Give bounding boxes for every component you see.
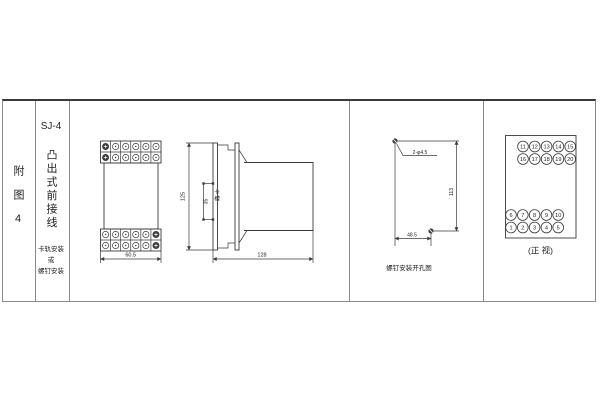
terminal-numbers: 1112131415161718192067891012345 [506, 141, 576, 233]
terminal-screw-icon [102, 242, 108, 248]
svg-text:9: 9 [545, 213, 548, 219]
top-step [218, 145, 236, 150]
terminal-19: 19 [553, 154, 564, 165]
side-view-drawing: 125 35 128 [181, 143, 314, 263]
terminal-1: 1 [506, 222, 517, 233]
svg-text:8: 8 [533, 213, 536, 219]
terminal-screw-icon [123, 154, 129, 160]
terminal-screw-icon [143, 231, 149, 237]
svg-text:15: 15 [567, 145, 573, 151]
bottom-step [218, 243, 236, 248]
terminal-screw-icon [143, 143, 149, 149]
terminal-screw-icon [133, 154, 139, 160]
relay-body-outline [104, 163, 158, 229]
terminal-screw-icon [133, 143, 139, 149]
svg-text:1: 1 [509, 226, 512, 232]
front-plate [213, 143, 218, 250]
terminal-17: 17 [529, 154, 540, 165]
hole-vertical-dimension: 113 [449, 188, 455, 196]
svg-text:3: 3 [533, 226, 536, 232]
terminal-9: 9 [541, 210, 552, 221]
terminal-screw-icon [102, 231, 108, 237]
terminal-15: 15 [565, 141, 576, 152]
mount-screw-icon [153, 242, 159, 248]
terminal-screw-icon [153, 154, 159, 160]
svg-text:12: 12 [532, 145, 538, 151]
technical-drawings: 60.5 125 [0, 0, 600, 400]
svg-text:18: 18 [543, 157, 549, 163]
terminal-face-outline [506, 136, 577, 239]
terminal-16: 16 [518, 154, 529, 165]
terminal-screw-icon [143, 154, 149, 160]
terminal-13: 13 [541, 141, 552, 152]
terminal-screw-icon [113, 242, 119, 248]
drill-template-drawing: 2-φ4.5 113 48.5 螺钉安装开孔图 [386, 138, 459, 272]
terminal-screw-icon [113, 143, 119, 149]
mounting-hole-icon [428, 228, 433, 233]
case-body [244, 163, 313, 231]
bezel-plate [235, 143, 239, 250]
svg-text:7: 7 [521, 213, 524, 219]
terminal-2: 2 [517, 222, 528, 233]
svg-text:5: 5 [557, 226, 560, 232]
svg-text:19: 19 [555, 157, 561, 163]
terminal-7: 7 [517, 210, 528, 221]
svg-text:17: 17 [532, 157, 538, 163]
svg-text:13: 13 [543, 145, 549, 151]
terminal-screw-icon [133, 242, 139, 248]
terminal-screw-icon [123, 143, 129, 149]
svg-text:4: 4 [545, 226, 548, 232]
slot-dimension: 35 [204, 199, 210, 205]
terminal-screw-icon [133, 231, 139, 237]
drill-template-caption: 螺钉安装开孔图 [386, 263, 432, 272]
terminal-5: 5 [553, 222, 564, 233]
hole-horizontal-dimension: 48.5 [407, 233, 417, 239]
terminal-20: 20 [565, 154, 576, 165]
terminal-8: 8 [529, 210, 540, 221]
terminal-face-caption: (正 视) [528, 246, 553, 256]
svg-text:14: 14 [555, 145, 561, 151]
terminal-3: 3 [529, 222, 540, 233]
terminal-4: 4 [541, 222, 552, 233]
terminal-18: 18 [541, 154, 552, 165]
mount-screw-icon [153, 231, 159, 237]
side-depth-dimension: 128 [257, 253, 266, 259]
terminal-screw-icon [153, 143, 159, 149]
mounting-hole-icon [392, 138, 397, 143]
svg-text:10: 10 [555, 213, 561, 219]
mount-screw-icon [102, 154, 108, 160]
terminal-screw-icon [113, 154, 119, 160]
terminal-6: 6 [506, 210, 517, 221]
terminal-screw-icon [123, 231, 129, 237]
front-width-dimension: 60.5 [125, 253, 136, 259]
terminal-11: 11 [518, 141, 529, 152]
terminal-14: 14 [553, 141, 564, 152]
terminal-screw-icon [113, 231, 119, 237]
front-view-drawing: 60.5 [101, 141, 162, 263]
terminal-screw-icon [123, 242, 129, 248]
svg-text:20: 20 [567, 157, 573, 163]
svg-text:6: 6 [509, 213, 512, 219]
terminal-10: 10 [553, 210, 564, 221]
hole-size-label: 2-φ4.5 [413, 150, 428, 156]
terminal-12: 12 [529, 141, 540, 152]
side-height-dimension: 125 [181, 192, 187, 201]
terminal-screw-icon [143, 242, 149, 248]
figure-page: 附图4 SJ-4 凸出式前接线 卡轨安装 或 螺钉安装 卡槽 [0, 0, 600, 400]
terminal-face-drawing: 1112131415161718192067891012345 (正 视) [506, 136, 577, 256]
svg-text:11: 11 [520, 145, 526, 151]
svg-text:2: 2 [521, 226, 524, 232]
svg-text:16: 16 [520, 157, 526, 163]
mount-screw-icon [102, 143, 108, 149]
